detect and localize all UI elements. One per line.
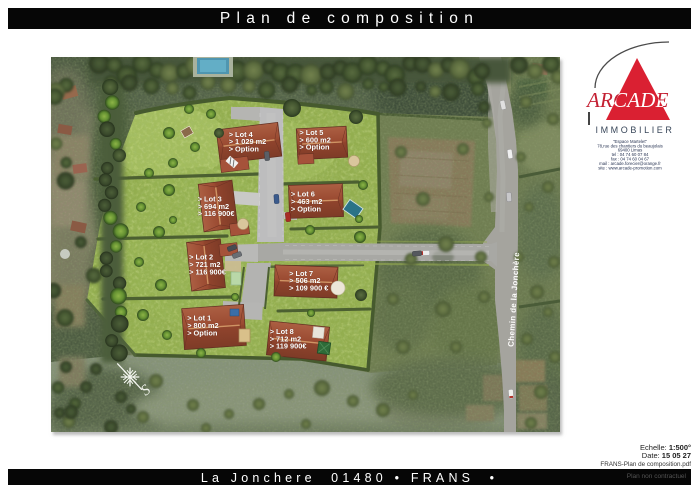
svg-text:> 109 900 €: > 109 900 € — [289, 284, 328, 293]
svg-text:IMMOBILIER: IMMOBILIER — [595, 125, 674, 135]
svg-text:> 119 900€: > 119 900€ — [270, 342, 307, 351]
svg-text:> Option: > Option — [187, 328, 218, 337]
svg-text:> 116 900€: > 116 900€ — [189, 267, 226, 276]
svg-text:> Option: > Option — [299, 143, 330, 152]
svg-text:> Option: > Option — [229, 145, 260, 154]
svg-text:> Option: > Option — [291, 204, 322, 213]
svg-text:> 116 900€: > 116 900€ — [198, 209, 235, 218]
svg-text:site : www.arcade-promotion.co: site : www.arcade-promotion.com — [598, 165, 662, 170]
